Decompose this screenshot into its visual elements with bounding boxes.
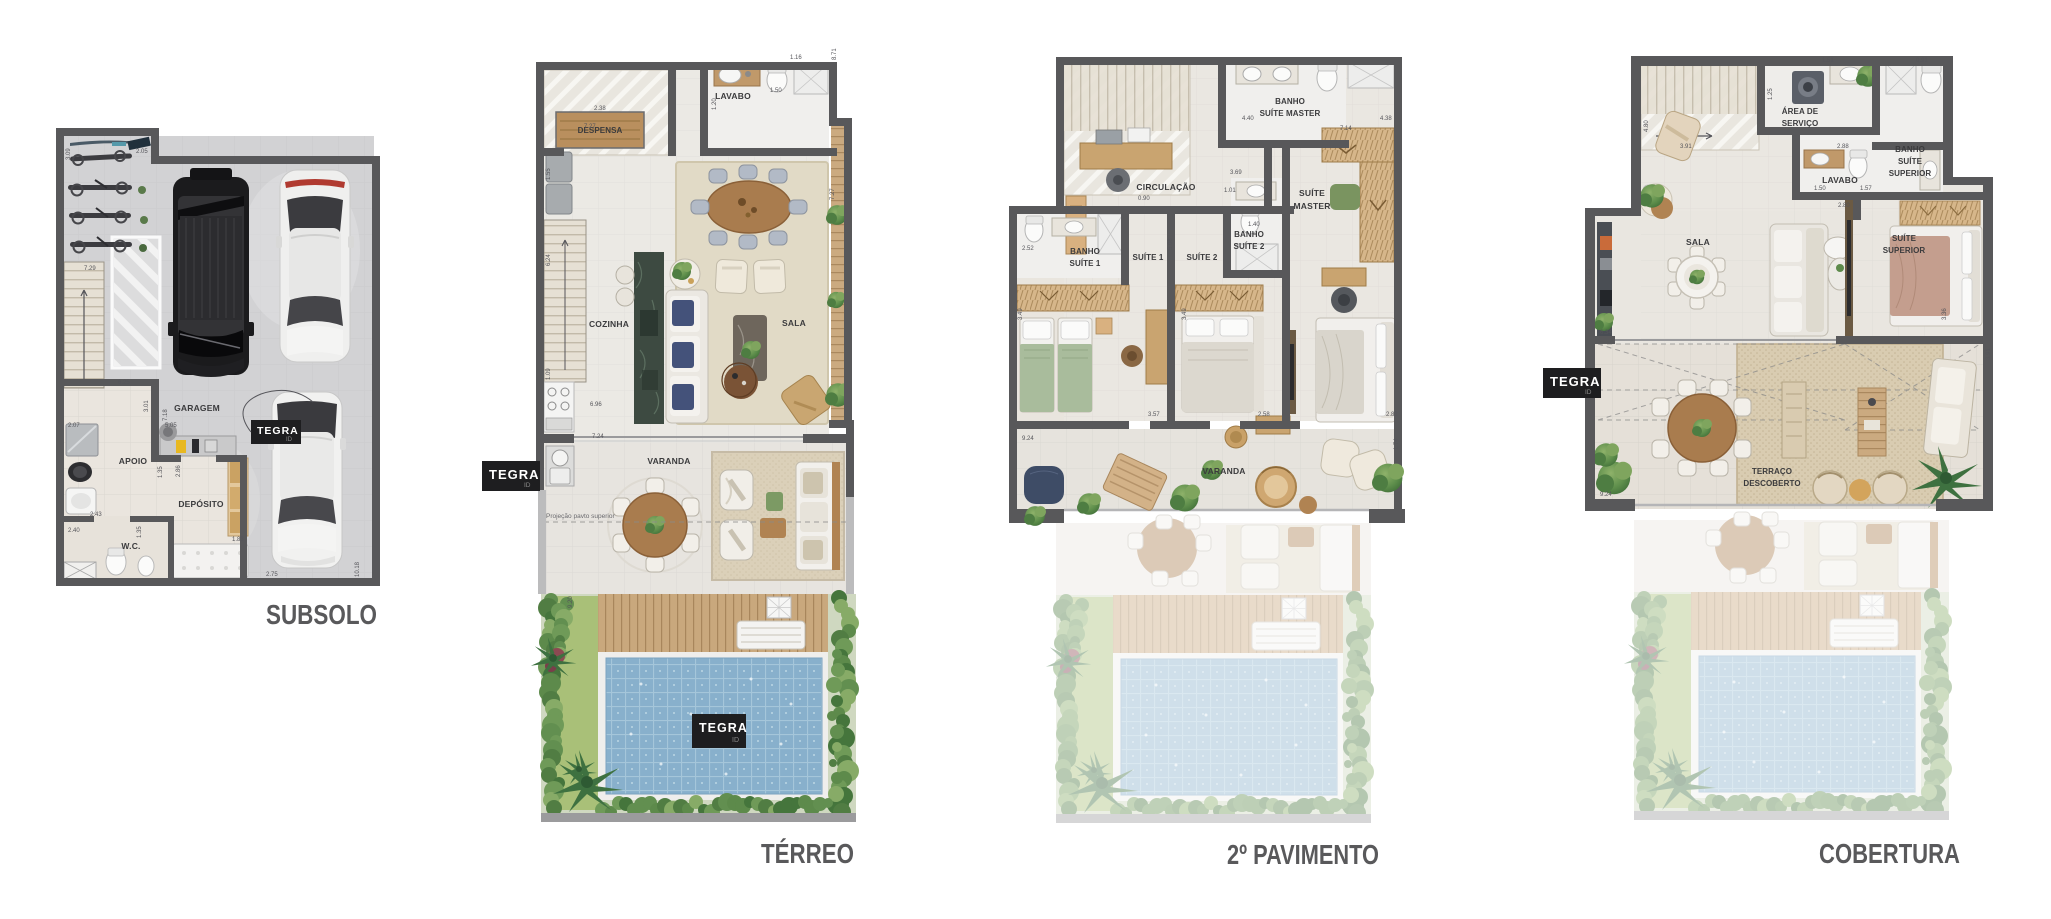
svg-text:2.86: 2.86 (176, 465, 182, 477)
svg-text:SUÍTE MASTER: SUÍTE MASTER (1260, 109, 1321, 118)
svg-text:COBERTURA: COBERTURA (1819, 838, 1960, 869)
svg-text:7.18: 7.18 (163, 409, 169, 421)
svg-text:DESCOBERTO: DESCOBERTO (1743, 479, 1800, 488)
svg-text:SUÍTE: SUÍTE (1898, 157, 1923, 166)
svg-text:LAVABO: LAVABO (715, 91, 751, 101)
svg-text:COZINHA: COZINHA (589, 319, 629, 329)
svg-text:2.38: 2.38 (594, 106, 606, 112)
svg-text:7.27: 7.27 (830, 188, 836, 200)
svg-text:6.24: 6.24 (546, 254, 552, 266)
svg-text:ID: ID (732, 737, 739, 744)
svg-text:6.34: 6.34 (1600, 330, 1612, 336)
svg-text:1.83: 1.83 (232, 537, 244, 543)
svg-text:1.20: 1.20 (712, 98, 718, 110)
svg-text:SUBSOLO: SUBSOLO (266, 599, 377, 630)
svg-text:1.25: 1.25 (1768, 88, 1774, 100)
svg-text:0.90: 0.90 (1138, 196, 1150, 202)
svg-text:2.75: 2.75 (266, 572, 278, 578)
svg-text:4.80: 4.80 (1644, 120, 1650, 132)
svg-text:CIRCULAÇÃO: CIRCULAÇÃO (1136, 182, 1195, 192)
svg-text:1.09: 1.09 (546, 368, 552, 380)
svg-text:TERRAÇO: TERRAÇO (1752, 467, 1792, 476)
svg-text:1.55: 1.55 (546, 168, 552, 180)
svg-text:2.80: 2.80 (1838, 203, 1850, 209)
svg-text:1.01: 1.01 (1224, 188, 1236, 194)
svg-text:3.57: 3.57 (1148, 412, 1160, 418)
svg-text:3.91: 3.91 (1986, 348, 1992, 360)
svg-text:Projeção pavto superior: Projeção pavto superior (546, 513, 615, 520)
svg-text:1.74: 1.74 (1394, 438, 1400, 450)
svg-text:GARAGEM: GARAGEM (174, 403, 220, 413)
svg-text:ID: ID (286, 437, 293, 443)
svg-text:4.40: 4.40 (1242, 116, 1254, 122)
svg-text:3.09: 3.09 (66, 148, 72, 160)
svg-text:9.24: 9.24 (1022, 436, 1034, 442)
svg-text:ÁREA DE: ÁREA DE (1782, 107, 1819, 116)
svg-text:1.51: 1.51 (1822, 58, 1834, 64)
svg-text:0.91: 0.91 (1916, 58, 1928, 64)
svg-text:SERVIÇO: SERVIÇO (1782, 119, 1819, 128)
svg-text:7.27: 7.27 (584, 124, 596, 130)
svg-text:2º PAVIMENTO: 2º PAVIMENTO (1227, 839, 1379, 870)
svg-text:3.49: 3.49 (1182, 308, 1188, 320)
svg-text:2.05: 2.05 (136, 149, 148, 155)
svg-text:7.24: 7.24 (592, 434, 604, 440)
svg-text:5.05: 5.05 (165, 423, 177, 429)
svg-text:7.29: 7.29 (84, 266, 96, 272)
svg-text:2.64: 2.64 (1588, 268, 1594, 280)
svg-text:VARANDA: VARANDA (647, 456, 690, 466)
svg-text:2.83: 2.83 (1386, 412, 1398, 418)
svg-text:DEPÓSITO: DEPÓSITO (178, 498, 224, 509)
svg-text:ID: ID (524, 482, 531, 489)
svg-text:LAVABO: LAVABO (1822, 175, 1858, 185)
svg-text:1.50: 1.50 (1814, 186, 1826, 192)
svg-text:SUPERIOR: SUPERIOR (1883, 246, 1926, 255)
svg-text:3.36: 3.36 (1942, 308, 1948, 320)
svg-text:TEGRA: TEGRA (489, 467, 540, 482)
svg-text:1.35: 1.35 (137, 526, 143, 538)
svg-text:9.24: 9.24 (1600, 492, 1612, 498)
svg-text:1.57: 1.57 (1860, 186, 1872, 192)
svg-text:1.35: 1.35 (158, 466, 164, 478)
svg-text:1.40: 1.40 (1248, 222, 1260, 228)
svg-text:4.38: 4.38 (1380, 116, 1392, 122)
svg-text:BANHO: BANHO (1234, 230, 1264, 239)
svg-text:3.91: 3.91 (1680, 144, 1692, 150)
svg-text:APOIO: APOIO (119, 456, 148, 466)
svg-text:2.07: 2.07 (68, 423, 80, 429)
svg-text:3.01: 3.01 (144, 400, 150, 412)
svg-text:3.69: 3.69 (1230, 170, 1242, 176)
svg-text:SUÍTE: SUÍTE (1299, 188, 1325, 198)
svg-text:SUÍTE: SUÍTE (1892, 234, 1917, 243)
svg-text:SUÍTE 2: SUÍTE 2 (1187, 253, 1218, 262)
svg-text:8.71: 8.71 (832, 48, 838, 60)
svg-text:MASTER: MASTER (1293, 201, 1330, 211)
svg-text:W.C.: W.C. (121, 541, 140, 551)
svg-text:3.49: 3.49 (1018, 308, 1024, 320)
svg-text:BANHO: BANHO (1275, 97, 1305, 106)
svg-text:7.14: 7.14 (1340, 126, 1352, 132)
svg-text:VARANDA: VARANDA (1202, 466, 1245, 476)
svg-text:6.25: 6.25 (118, 380, 130, 386)
svg-text:1.50: 1.50 (770, 88, 782, 94)
svg-text:2.52: 2.52 (1022, 246, 1034, 252)
svg-text:2.58: 2.58 (1258, 412, 1270, 418)
svg-text:2.43: 2.43 (90, 512, 102, 518)
svg-text:TEGRA: TEGRA (257, 425, 299, 437)
svg-text:TEGRA: TEGRA (1550, 374, 1601, 389)
svg-text:SUÍTE 1: SUÍTE 1 (1070, 259, 1101, 268)
svg-text:SUPERIOR: SUPERIOR (1889, 169, 1932, 178)
svg-text:BANHO: BANHO (1895, 145, 1925, 154)
svg-text:ID: ID (1585, 389, 1592, 396)
svg-text:6.96: 6.96 (590, 402, 602, 408)
svg-text:BANHO: BANHO (1070, 247, 1100, 256)
svg-text:SALA: SALA (782, 318, 806, 328)
svg-text:TÉRREO: TÉRREO (761, 838, 854, 869)
svg-text:SALA: SALA (1686, 237, 1710, 247)
svg-text:5.08: 5.08 (1168, 238, 1174, 250)
svg-text:2.40: 2.40 (68, 528, 80, 534)
svg-text:TEGRA: TEGRA (699, 721, 748, 735)
svg-text:SUÍTE 2: SUÍTE 2 (1234, 242, 1265, 251)
svg-text:9.20: 9.20 (568, 596, 574, 608)
svg-text:1.16: 1.16 (790, 55, 802, 61)
svg-text:10.18: 10.18 (355, 561, 361, 577)
svg-text:2.88: 2.88 (1837, 144, 1849, 150)
svg-text:SUÍTE 1: SUÍTE 1 (1133, 253, 1164, 262)
